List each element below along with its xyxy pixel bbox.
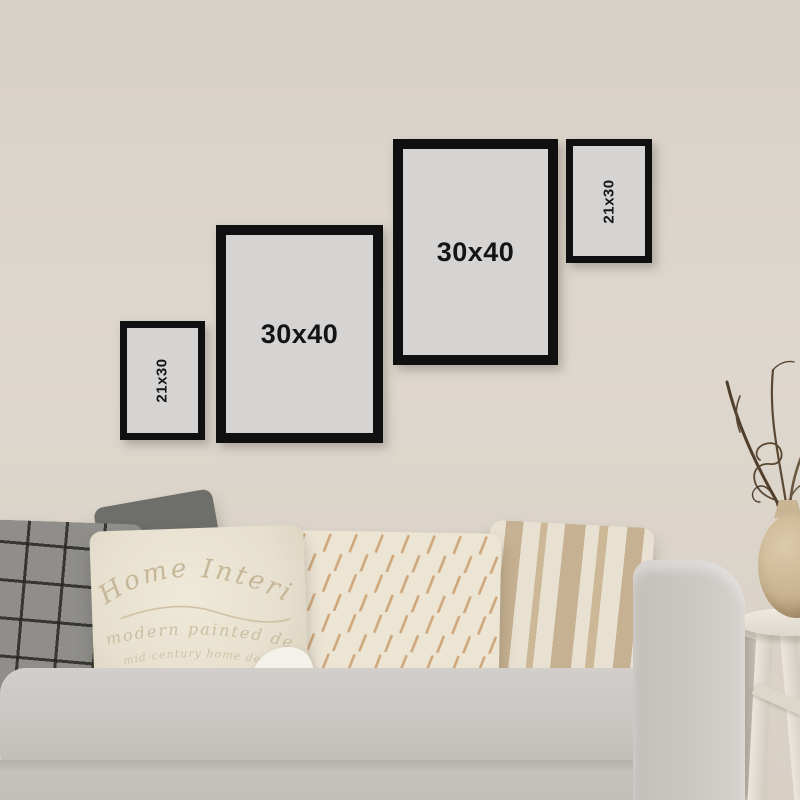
picture-frame-21x30-left: 21x30 <box>120 321 205 440</box>
vase <box>758 512 800 618</box>
pillow-text-line1: Home Interior <box>89 524 299 616</box>
sofa-seat-cushion <box>0 668 728 768</box>
frame-size-label: 21x30 <box>154 358 171 402</box>
frame-mat: 30x40 <box>226 235 373 433</box>
picture-frame-30x40-right: 30x40 <box>393 139 558 365</box>
living-room-scene: 21x30 30x40 30x40 21x30 <box>0 0 800 800</box>
frame-mat: 30x40 <box>403 149 548 355</box>
stool-leg <box>780 630 800 800</box>
frame-mat: 21x30 <box>573 146 645 256</box>
frame-size-label: 21x30 <box>601 179 618 223</box>
frame-size-label: 30x40 <box>437 237 515 268</box>
sofa-base <box>0 760 740 800</box>
sofa-armrest <box>633 560 745 800</box>
frame-mat: 21x30 <box>127 328 198 433</box>
svg-text:Home Interior: Home Interior <box>89 524 299 616</box>
picture-frame-21x30-right: 21x30 <box>566 139 652 263</box>
dried-branches <box>636 350 800 525</box>
frame-size-label: 30x40 <box>261 319 339 350</box>
picture-frame-30x40-left: 30x40 <box>216 225 383 443</box>
